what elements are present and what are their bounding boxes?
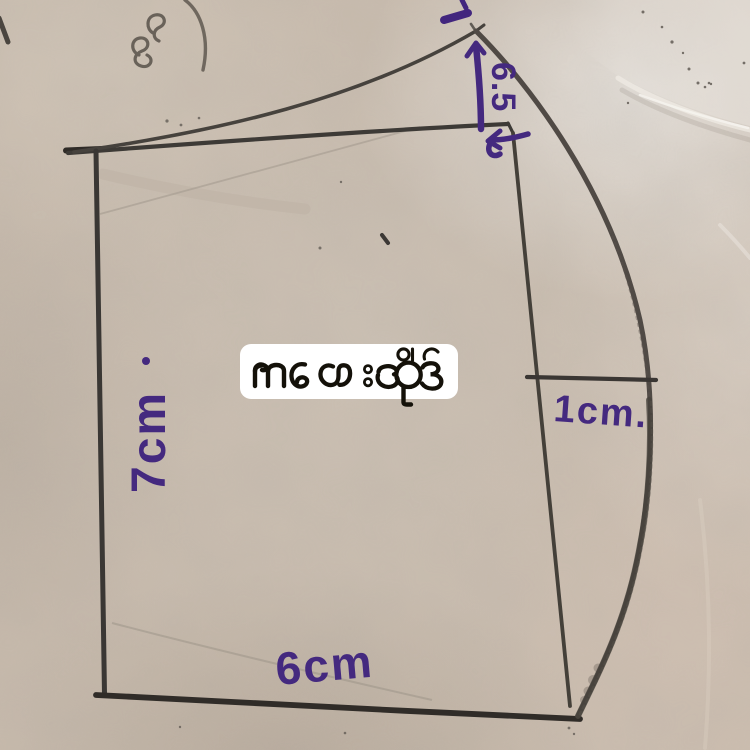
svg-text:6.5: 6.5: [484, 62, 522, 112]
svg-text:7cm: 7cm: [123, 391, 176, 493]
svg-text:6cm: 6cm: [273, 635, 375, 695]
svg-text:1cm.: 1cm.: [552, 388, 649, 436]
